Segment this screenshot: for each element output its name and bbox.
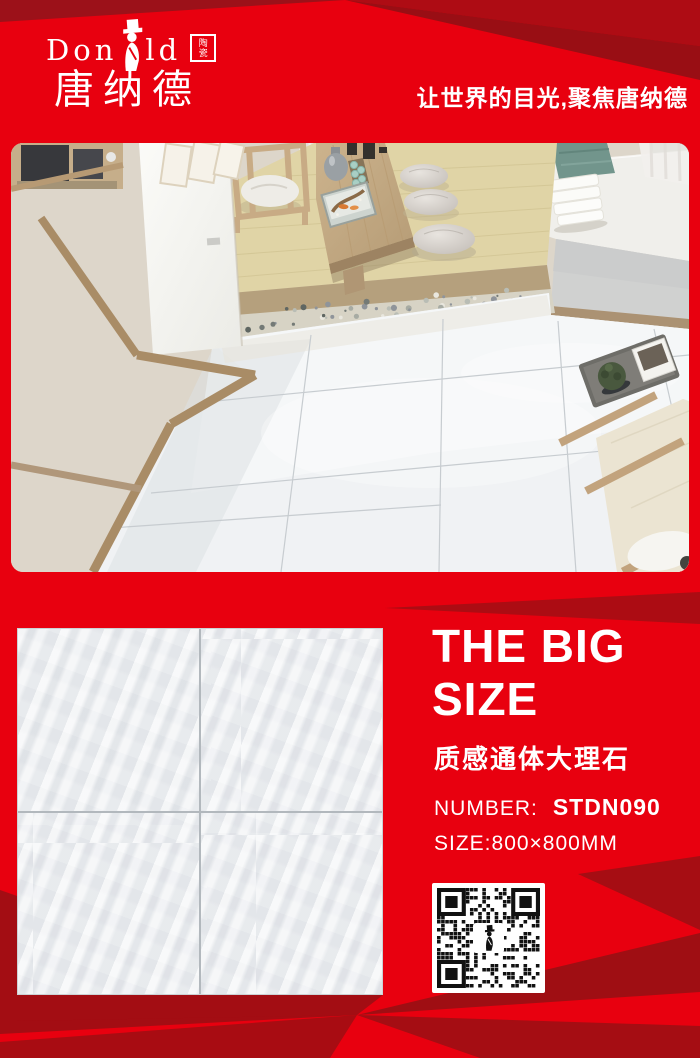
- tile-swatch: [18, 629, 199, 811]
- water-glimpse: [551, 143, 615, 179]
- hero-photo: [11, 143, 689, 572]
- seat-cushion: [241, 175, 299, 207]
- number-value: STDN090: [553, 794, 661, 820]
- brand-logo: Don ld 陶 瓷 唐纳德: [46, 18, 216, 111]
- product-subtitle: 质感通体大理石: [434, 739, 630, 776]
- ceramics-badge: 陶 瓷: [190, 34, 216, 62]
- shelf-decor: [11, 143, 123, 189]
- star-ray-bottom-right: [357, 1015, 700, 1058]
- poster-root: Don ld 陶 瓷 唐纳德 让世界的目光,聚焦唐纳德: [0, 0, 700, 1058]
- product-headline: THE BIG SIZE: [432, 620, 626, 726]
- tile-swatch: [18, 813, 199, 995]
- tile-shadow: [17, 995, 383, 1021]
- brand-slogan: 让世界的目光,聚焦唐纳德: [417, 79, 688, 113]
- product-number-row: NUMBER:STDN090: [434, 794, 661, 821]
- product-size: SIZE:800×800MM: [434, 832, 618, 856]
- number-label: NUMBER:: [434, 797, 538, 820]
- tile-swatch: [201, 813, 382, 995]
- gentleman-icon: [118, 18, 144, 72]
- right-corner-wedge: [578, 856, 700, 930]
- brand-wordmark: Don ld 陶 瓷: [46, 18, 216, 65]
- badge-char-bottom: 瓷: [199, 48, 208, 58]
- qr-code: [432, 883, 545, 993]
- header: Don ld 陶 瓷 唐纳德 让世界的目光,聚焦唐纳德: [0, 0, 700, 143]
- headline-line1: THE BIG: [432, 620, 626, 673]
- badge-char-top: 陶: [199, 38, 208, 48]
- wordmark-right: ld: [145, 36, 181, 65]
- brand-chinese-name: 唐纳德: [54, 69, 216, 111]
- tile-swatch: [201, 629, 382, 811]
- wordmark-left: Don: [46, 36, 117, 65]
- tile-sample-image: [17, 628, 383, 995]
- headline-line2: SIZE: [432, 673, 626, 726]
